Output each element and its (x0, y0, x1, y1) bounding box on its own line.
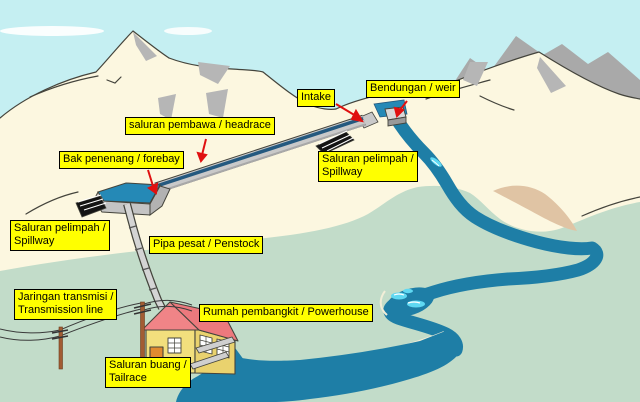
label-forebay: Bak penenang / forebay (59, 151, 184, 169)
label-tailrace: Saluran buang / Tailrace (105, 357, 191, 388)
cloud-icon (0, 26, 104, 36)
cloud-icon (164, 27, 212, 35)
diagram-canvas (0, 0, 640, 402)
label-transmission: Jaringan transmisi / Transmission line (14, 289, 117, 320)
label-penstock: Pipa pesat / Penstock (149, 236, 263, 254)
label-headrace: saluran pembawa / headrace (125, 117, 275, 135)
label-powerhouse: Rumah pembangkit / Powerhouse (199, 304, 373, 322)
label-intake: Intake (297, 89, 335, 107)
label-weir: Bendungan / weir (366, 80, 460, 98)
label-spillway-upper: Saluran pelimpah / Spillway (318, 151, 418, 182)
label-spillway-lower: Saluran pelimpah / Spillway (10, 220, 110, 251)
hydro-scheme-diagram: Intake Bendungan / weir saluran pembawa … (0, 0, 640, 402)
